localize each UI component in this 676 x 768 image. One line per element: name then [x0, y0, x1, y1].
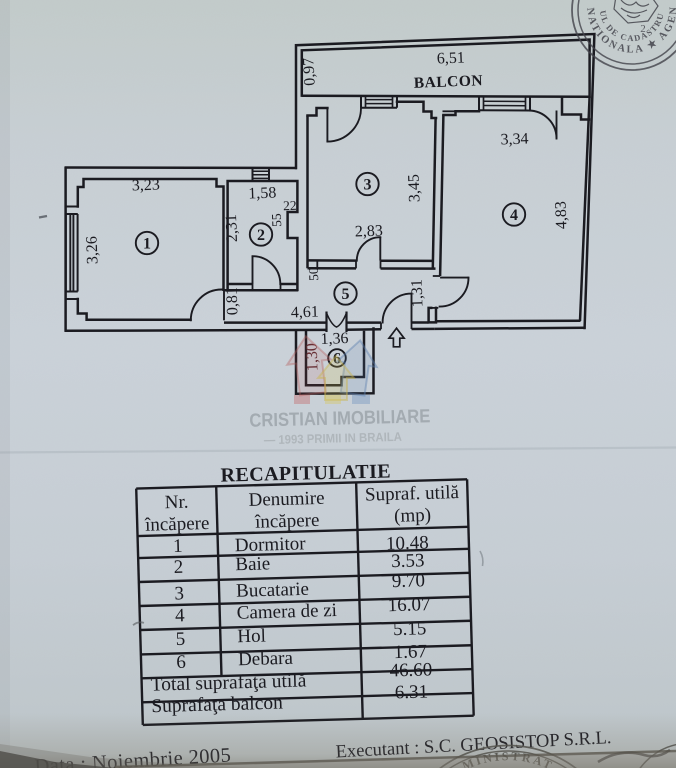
svg-text:încăpere: încăpere [254, 510, 320, 533]
svg-text:Debara: Debara [238, 648, 294, 671]
svg-text:4,83: 4,83 [553, 201, 571, 230]
svg-text:Supraf. utilă: Supraf. utilă [365, 482, 460, 506]
svg-text:6.31: 6.31 [395, 681, 429, 703]
svg-text:BALCON: BALCON [413, 72, 483, 92]
svg-text:0,97: 0,97 [300, 57, 318, 86]
svg-text:55: 55 [269, 213, 284, 227]
svg-text:6: 6 [176, 652, 186, 673]
svg-text:3,45: 3,45 [406, 174, 424, 203]
svg-text:5: 5 [175, 629, 185, 650]
svg-text:50: 50 [306, 267, 321, 281]
svg-text:4: 4 [510, 207, 518, 224]
svg-text:3,34: 3,34 [500, 131, 529, 149]
svg-text:5: 5 [342, 286, 350, 303]
svg-text:Denumire: Denumire [248, 488, 325, 511]
svg-text:Camera de zi: Camera de zi [236, 600, 337, 624]
svg-text:2: 2 [257, 227, 265, 244]
svg-text:3.53: 3.53 [391, 550, 425, 572]
svg-text:Hol: Hol [237, 625, 266, 647]
svg-text:3: 3 [174, 583, 184, 604]
svg-text:9.70: 9.70 [392, 570, 426, 592]
svg-text:(mp): (mp) [394, 505, 432, 527]
svg-text:1: 1 [173, 536, 183, 557]
svg-text:Nr.: Nr. [164, 492, 188, 514]
svg-text:4,61: 4,61 [291, 304, 320, 322]
svg-text:Total suprafaţa utilă: Total suprafaţa utilă [150, 670, 307, 695]
svg-text:Bucatarie: Bucatarie [236, 579, 309, 602]
svg-text:1: 1 [143, 236, 151, 253]
svg-text:5.15: 5.15 [393, 618, 427, 640]
svg-text:1,31: 1,31 [409, 279, 427, 308]
svg-text:1,36: 1,36 [320, 330, 349, 348]
svg-text:6,51: 6,51 [437, 49, 466, 67]
svg-text:3: 3 [364, 177, 372, 194]
svg-text:3,26: 3,26 [84, 236, 102, 265]
svg-text:0,81: 0,81 [224, 287, 242, 316]
svg-text:46.60: 46.60 [389, 659, 432, 681]
svg-text:2: 2 [173, 557, 183, 578]
svg-text:3,23: 3,23 [132, 177, 161, 195]
svg-text:Baie: Baie [235, 553, 270, 575]
svg-text:1,58: 1,58 [248, 185, 277, 203]
svg-text:4: 4 [175, 605, 186, 626]
svg-text:2: 2 [640, 23, 646, 35]
svg-text:16.07: 16.07 [387, 594, 430, 616]
svg-text:2,31: 2,31 [223, 214, 241, 243]
svg-text:Dormitor: Dormitor [235, 533, 307, 556]
svg-text:încăpere: încăpere [144, 513, 210, 536]
svg-text:2,83: 2,83 [355, 223, 384, 241]
svg-text:CRISTIAN IMOBILIARE: CRISTIAN IMOBILIARE [249, 406, 430, 431]
svg-text:22: 22 [283, 198, 297, 213]
